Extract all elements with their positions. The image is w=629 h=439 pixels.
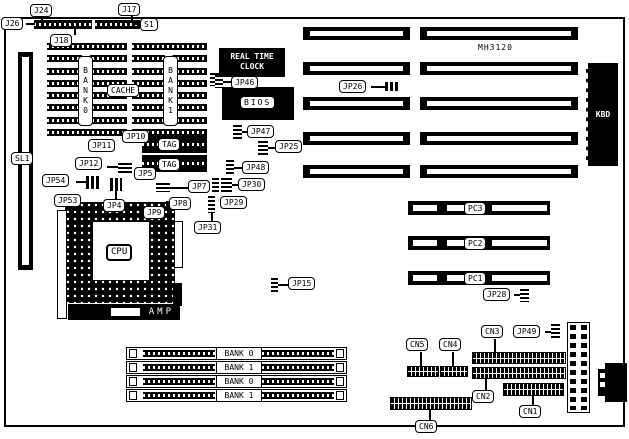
label-simm-bank: BANK 1 bbox=[216, 361, 262, 374]
connector-cn3 bbox=[472, 352, 566, 364]
isa-slot bbox=[303, 62, 410, 75]
rtc-chip-text: REAL TIME CLOCK bbox=[219, 52, 285, 72]
cache-chip-row bbox=[47, 129, 127, 136]
slot-segment bbox=[492, 205, 547, 211]
label-sl1: SL1 bbox=[11, 152, 33, 165]
jumper-jp28 bbox=[520, 289, 529, 302]
label-j26: J26 bbox=[1, 17, 23, 30]
label-j17: J17 bbox=[118, 3, 140, 16]
simm-slot-2: BANK 1 bbox=[126, 361, 347, 374]
kbd-connector: KBD bbox=[586, 63, 618, 166]
simm-slot-4: BANK 1 bbox=[126, 389, 347, 402]
label-s1: S1 bbox=[140, 18, 158, 31]
rtc-chip: REAL TIME CLOCK bbox=[219, 48, 285, 77]
simm-contacts bbox=[262, 364, 334, 371]
isa-slot bbox=[420, 97, 578, 110]
label-tag-lower: TAG bbox=[158, 158, 180, 171]
label-jp10: JP10 bbox=[122, 130, 149, 143]
leader-line bbox=[420, 352, 422, 366]
leader-line bbox=[371, 86, 385, 88]
connector-cn6 bbox=[390, 397, 472, 410]
jumper-jp15 bbox=[271, 278, 278, 292]
leader-line bbox=[26, 23, 35, 25]
cache-chip-row bbox=[132, 43, 207, 50]
cpu-side-connector-left bbox=[57, 210, 67, 319]
slot-segment bbox=[413, 205, 437, 211]
label-j18: J18 bbox=[50, 34, 72, 47]
label-cn3: CN3 bbox=[481, 325, 503, 338]
leader-line bbox=[452, 352, 454, 366]
leader-line bbox=[107, 166, 118, 168]
label-cn6: CN6 bbox=[415, 420, 437, 433]
slot-segment bbox=[413, 240, 437, 246]
simm-contacts bbox=[143, 350, 215, 357]
label-cn5: CN5 bbox=[406, 338, 428, 351]
label-cpu: CPU bbox=[106, 244, 132, 261]
isa-slot bbox=[303, 132, 410, 145]
label-jp25: JP25 bbox=[275, 140, 302, 153]
label-tag-upper: TAG bbox=[158, 138, 180, 151]
din-notch bbox=[600, 382, 605, 387]
simm-contacts bbox=[143, 392, 215, 399]
simm-latch bbox=[129, 349, 137, 358]
label-jp26: JP26 bbox=[339, 80, 366, 93]
jumper-jp29 bbox=[212, 178, 219, 194]
isa-slot bbox=[420, 62, 578, 75]
din-keyboard-connector bbox=[605, 363, 627, 402]
slot-segment bbox=[492, 275, 547, 281]
leader-line bbox=[170, 187, 188, 189]
simm-contacts bbox=[262, 392, 334, 399]
isa-slot bbox=[303, 165, 410, 178]
leader-line bbox=[429, 410, 431, 420]
connector-cn5 bbox=[407, 366, 439, 377]
label-jp48: JP48 bbox=[242, 161, 269, 174]
leader-line bbox=[485, 379, 487, 390]
label-jp29: JP29 bbox=[220, 196, 247, 209]
isa-slot bbox=[420, 27, 578, 40]
label-jp47: JP47 bbox=[247, 125, 274, 138]
label-jp15: JP15 bbox=[288, 277, 315, 290]
jumper-jp54 bbox=[86, 176, 99, 189]
leader-line bbox=[532, 396, 534, 405]
leader-line bbox=[76, 181, 86, 183]
label-jp31: JP31 bbox=[194, 221, 221, 234]
label-jp7: JP7 bbox=[188, 180, 210, 193]
connector-cn4 bbox=[440, 366, 468, 377]
simm-latch bbox=[129, 391, 137, 400]
label-jp5: JP5 bbox=[134, 167, 156, 180]
simm-slot-3: BANK 0 bbox=[126, 375, 347, 388]
board-model-text: MH3120 bbox=[478, 43, 513, 52]
label-cache-bank0: BANK0 bbox=[78, 56, 93, 126]
label-simm-bank: BANK 0 bbox=[216, 347, 262, 360]
slot-segment bbox=[492, 240, 547, 246]
simm-latch bbox=[336, 391, 344, 400]
label-simm-bank: BANK 1 bbox=[216, 389, 262, 402]
label-cn4: CN4 bbox=[439, 338, 461, 351]
label-cache-bank1: BANK1 bbox=[163, 56, 178, 126]
jumper-jp48 bbox=[226, 160, 234, 175]
label-bios: BIOS bbox=[240, 96, 275, 109]
isa-slot bbox=[420, 165, 578, 178]
simm-slot-1: BANK 0 bbox=[126, 347, 347, 360]
label-jp30: JP30 bbox=[238, 178, 265, 191]
label-j24: J24 bbox=[30, 4, 52, 17]
label-pc2: PC2 bbox=[464, 237, 486, 250]
motherboard-diagram: J24 J17 J26 S1 J18 SL1 BANK0 BANK1 CACHE… bbox=[0, 0, 629, 439]
simm-latch bbox=[336, 377, 344, 386]
isa-slot bbox=[303, 27, 410, 40]
jumper-jp49 bbox=[551, 324, 560, 338]
isa-slot bbox=[303, 97, 410, 110]
leader-line bbox=[514, 294, 520, 296]
din-notch bbox=[600, 373, 605, 378]
label-kbd: KBD bbox=[596, 110, 610, 119]
label-jp28: JP28 bbox=[483, 288, 510, 301]
leader-line bbox=[545, 331, 551, 333]
jumper-jp25 bbox=[258, 141, 268, 155]
label-amp: AMP bbox=[149, 307, 174, 317]
simm-contacts bbox=[143, 364, 215, 371]
jumper-jp10-11-12 bbox=[118, 163, 132, 173]
label-jp53: JP53 bbox=[54, 194, 81, 207]
slot-segment bbox=[413, 275, 437, 281]
label-jp4: JP4 bbox=[103, 199, 125, 212]
simm-latch bbox=[129, 377, 137, 386]
jumper-jp30 bbox=[221, 178, 232, 192]
jumper-jp47 bbox=[233, 125, 242, 140]
label-jp12: JP12 bbox=[75, 157, 102, 170]
label-pc3: PC3 bbox=[464, 202, 486, 215]
label-pc1: PC1 bbox=[464, 272, 486, 285]
connector-cn2 bbox=[472, 367, 566, 379]
label-jp46: JP46 bbox=[231, 76, 258, 89]
label-simm-bank: BANK 0 bbox=[216, 375, 262, 388]
label-cn2: CN2 bbox=[472, 390, 494, 403]
jumper-jp31 bbox=[208, 196, 215, 213]
label-jp9: JP9 bbox=[143, 206, 165, 219]
simm-latch bbox=[336, 349, 344, 358]
cpu-side-bar bbox=[173, 283, 182, 306]
label-jp49: JP49 bbox=[513, 325, 540, 338]
simm-contacts bbox=[262, 378, 334, 385]
isa-slot bbox=[420, 132, 578, 145]
label-cache: CACHE bbox=[107, 84, 139, 97]
zif-lever bbox=[111, 308, 140, 316]
leader-line bbox=[74, 28, 76, 35]
simm-contacts bbox=[262, 350, 334, 357]
cpu-side-connector-right bbox=[174, 221, 183, 268]
jumper-jp7 bbox=[156, 183, 170, 192]
zif-lever-bar: AMP bbox=[68, 304, 180, 320]
simm-latch bbox=[336, 363, 344, 372]
label-cn1: CN1 bbox=[519, 405, 541, 418]
jumper-jp4 bbox=[110, 178, 122, 191]
label-jp54: JP54 bbox=[42, 174, 69, 187]
power-connector bbox=[567, 322, 590, 413]
simm-contacts bbox=[143, 378, 215, 385]
connector-cn1 bbox=[503, 383, 564, 396]
top-header-left bbox=[34, 20, 92, 29]
label-jp8: JP8 bbox=[169, 197, 191, 210]
simm-latch bbox=[129, 363, 137, 372]
leader-line bbox=[494, 339, 496, 352]
jumper-jp46 bbox=[215, 75, 223, 88]
jumper-jp26 bbox=[385, 82, 398, 91]
label-jp11: JP11 bbox=[88, 139, 115, 152]
